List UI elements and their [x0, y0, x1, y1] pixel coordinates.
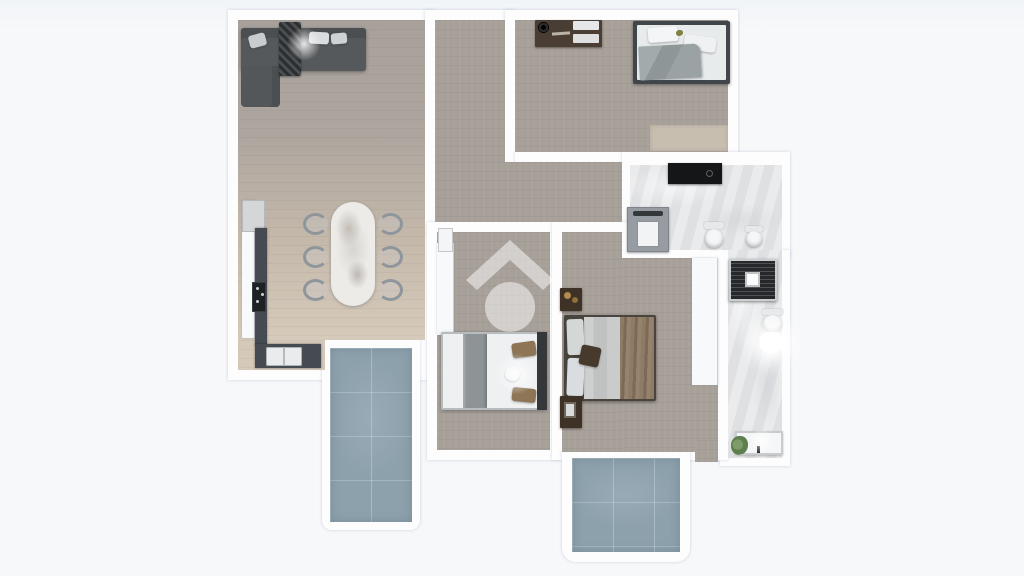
- desk-tray: [573, 21, 599, 30]
- nightstand-gold-dish: [564, 292, 571, 299]
- bedroom2-wardrobe: [692, 258, 718, 385]
- dining-chair: [378, 279, 403, 301]
- corner-sofa-chaise: [241, 66, 280, 107]
- bedroom1-wardrobe-strip: [437, 243, 454, 335]
- dining-chair: [303, 246, 328, 268]
- washing-machine-handle: [633, 211, 663, 216]
- bed1-pillow-round: [505, 366, 520, 381]
- cooktop-knob: [261, 293, 264, 296]
- dining-chair: [378, 246, 403, 268]
- bedroom2-floor-connector: [695, 440, 718, 462]
- nightstand-gold-dish: [572, 297, 578, 303]
- hallway-floor-upper: [435, 20, 505, 162]
- washing-machine-door: [637, 221, 659, 247]
- hallway-floor-lower: [435, 162, 622, 222]
- ensuite-toilet: [763, 315, 782, 332]
- dining-chair: [303, 279, 328, 301]
- toilet-tank: [704, 222, 724, 229]
- desk-tray: [573, 34, 599, 43]
- kitchen-sink-divider: [283, 347, 285, 366]
- marble-dining-table: [331, 202, 375, 306]
- bed2-brown-throw: [620, 317, 654, 399]
- toilet: [705, 229, 723, 248]
- cooktop: [252, 282, 266, 312]
- sofa-pillow: [309, 31, 330, 44]
- bed3-pillow: [648, 26, 679, 43]
- bed3-gray-blanket: [638, 43, 702, 80]
- cooktop-knob: [256, 300, 259, 303]
- wall-sink-lit: [760, 332, 783, 353]
- bed2-accent-cushion: [578, 344, 602, 368]
- bed1-gray-runner: [463, 334, 487, 408]
- cooktop-knob: [256, 287, 259, 290]
- terrace-bottom-floor: [572, 458, 680, 552]
- bidet: [746, 231, 762, 247]
- nightstand-photo-frame: [564, 402, 576, 418]
- bedroom1-door-leaf: [438, 228, 453, 252]
- dining-chair: [378, 213, 403, 235]
- bed1-pillow-brown: [511, 387, 536, 403]
- watermark-house-logo: [460, 234, 560, 336]
- vanity-item: [706, 170, 713, 177]
- bathtub-faucet: [757, 446, 760, 453]
- striped-throw-blanket: [279, 22, 301, 76]
- floor-plan-canvas: [0, 0, 1024, 576]
- terrace-left-floor: [330, 348, 412, 522]
- bed1-headboard: [537, 332, 547, 410]
- nightstand-top: [560, 288, 582, 311]
- shower-drain: [745, 272, 760, 287]
- black-vanity-counter: [668, 163, 722, 184]
- vinyl-player-icon: [538, 22, 549, 33]
- dining-chair: [303, 213, 328, 235]
- bedroom3-light-rug: [650, 125, 728, 151]
- sofa-pillow: [331, 32, 348, 44]
